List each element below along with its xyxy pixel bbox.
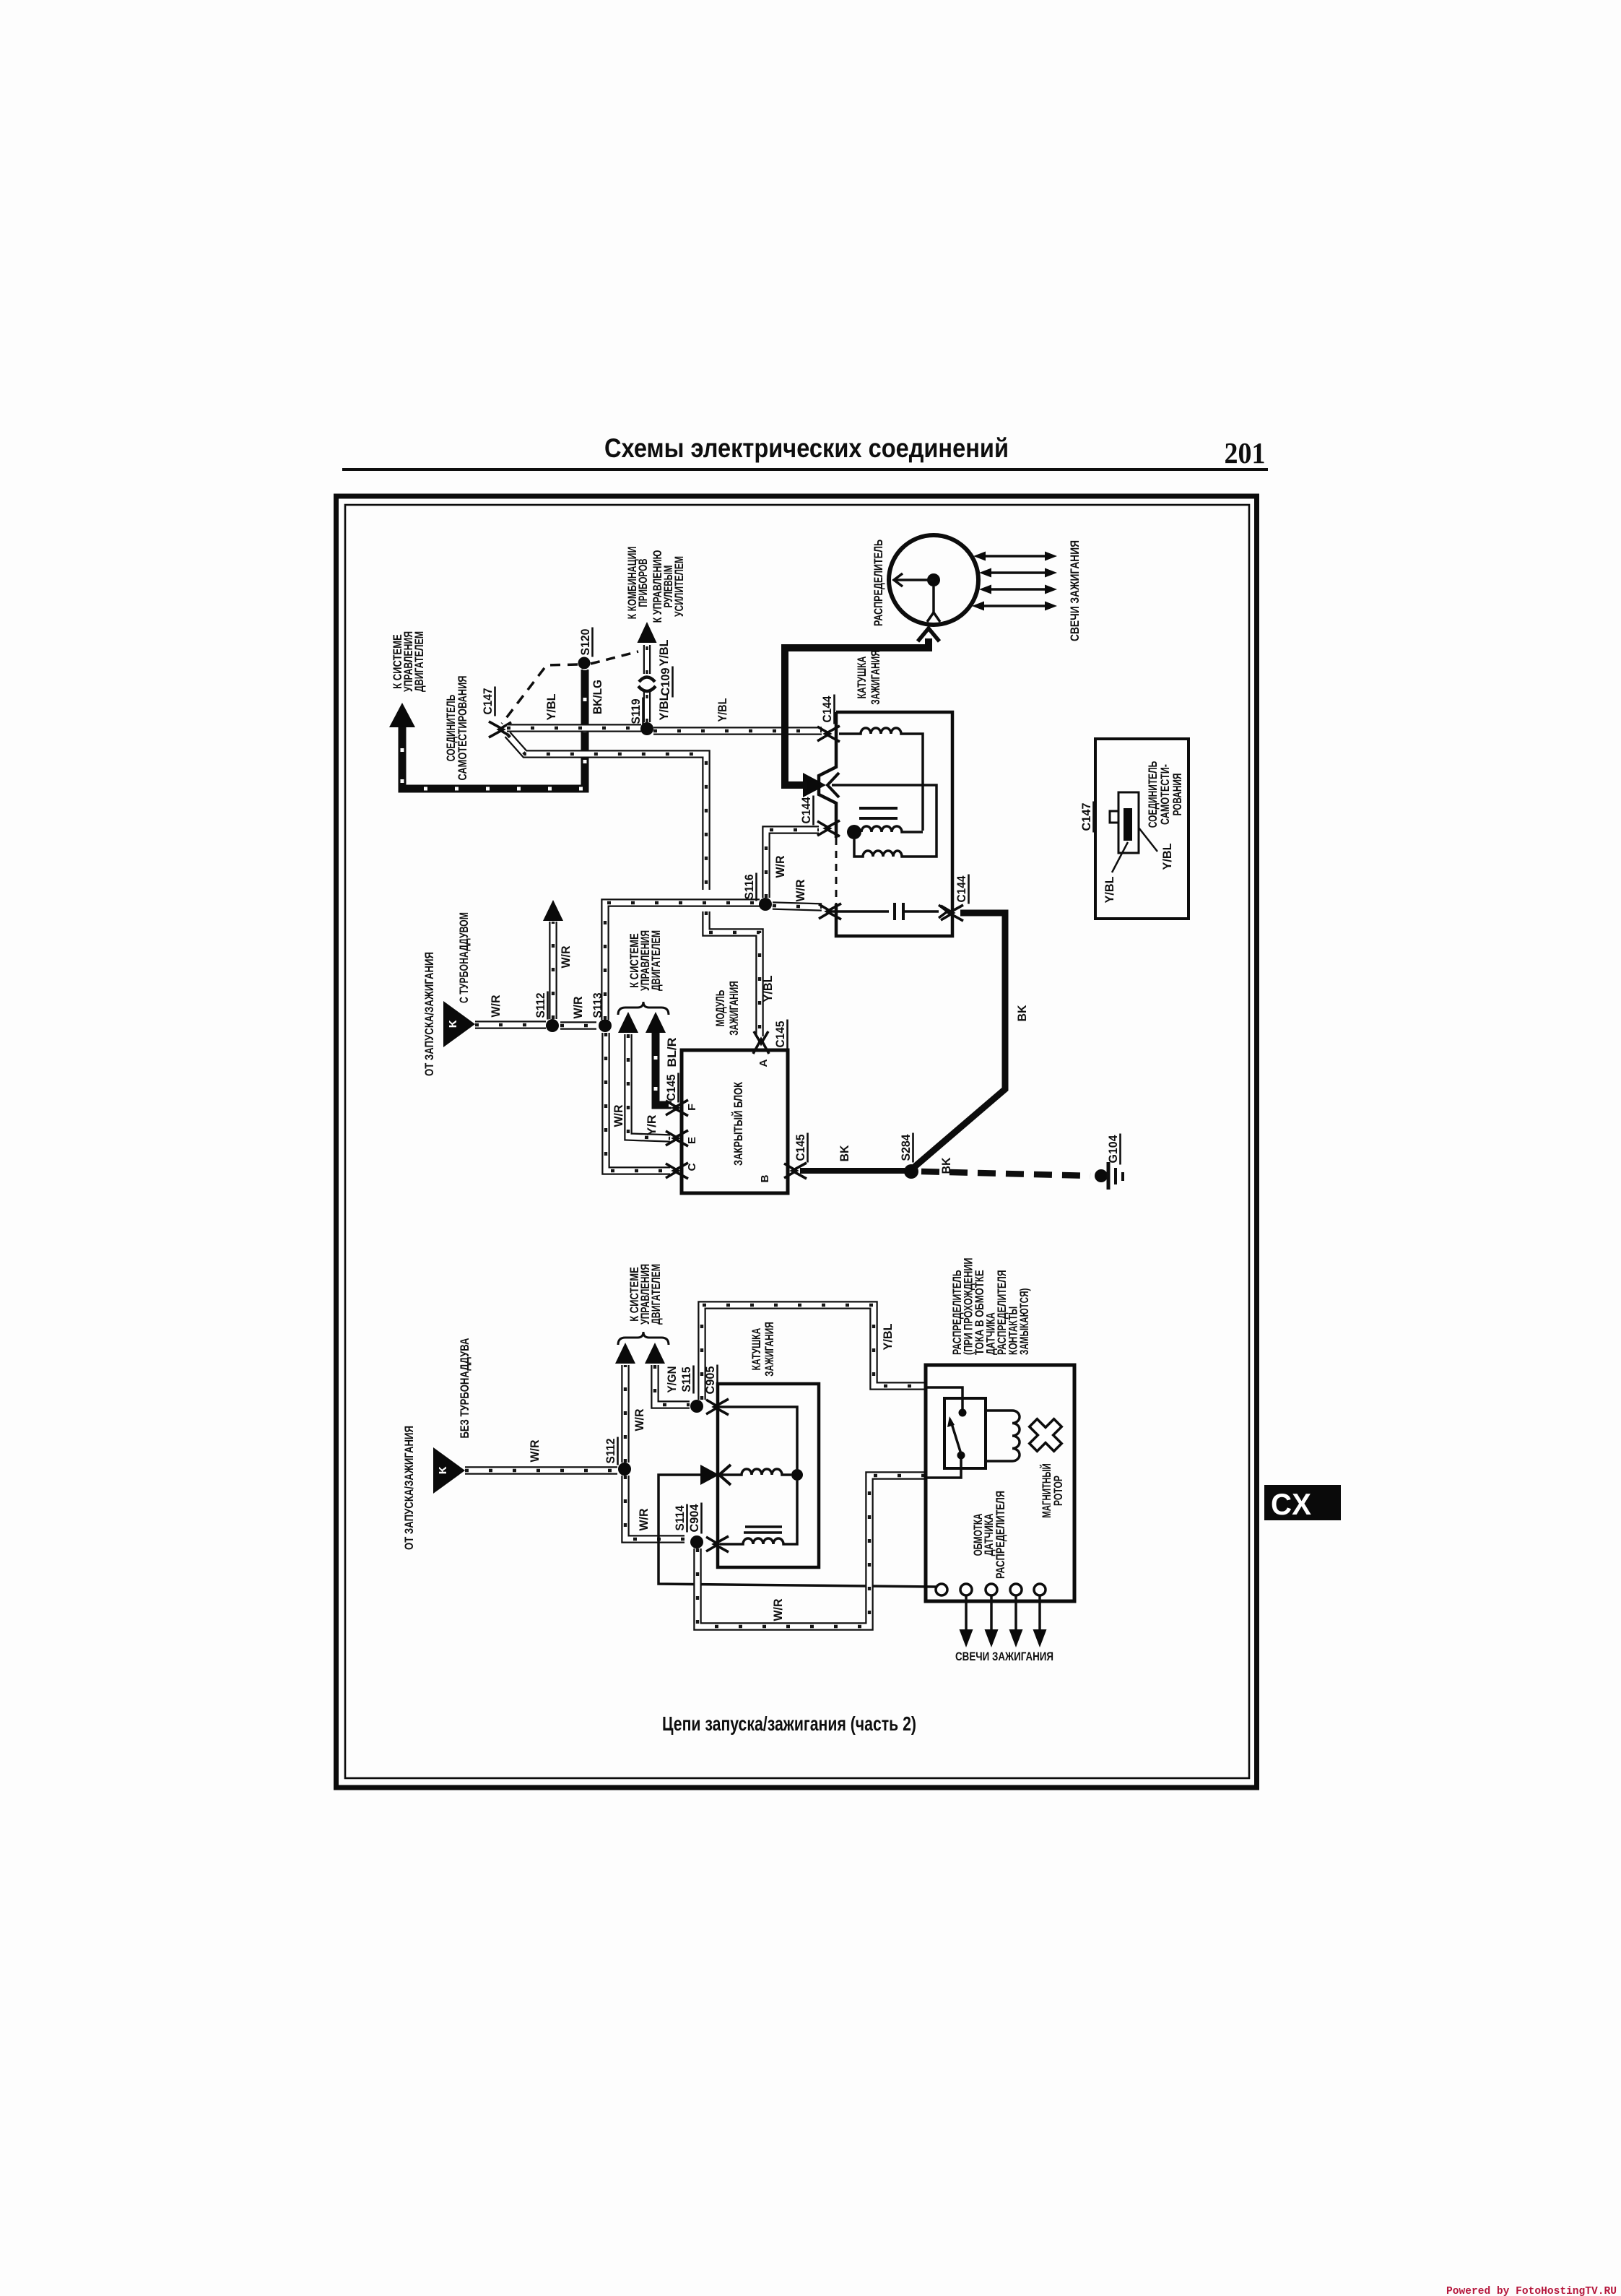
svg-text:W/R: W/R <box>490 995 503 1017</box>
svg-text:S114: S114 <box>674 1505 687 1531</box>
svg-text:201: 201 <box>1225 436 1266 469</box>
svg-text:E: E <box>686 1137 698 1144</box>
svg-text:S112: S112 <box>534 993 547 1018</box>
svg-text:W/R: W/R <box>794 879 807 901</box>
svg-text:ДВИГАТЕЛЕМ: ДВИГАТЕЛЕМ <box>650 1264 663 1325</box>
svg-text:САМОТЕСТИ-: САМОТЕСТИ- <box>1159 764 1172 825</box>
svg-text:W/R: W/R <box>772 1598 785 1621</box>
svg-text:УСИЛИТЕЛЕМ: УСИЛИТЕЛЕМ <box>673 556 686 617</box>
svg-text:W/R: W/R <box>560 945 573 968</box>
svg-text:РАСПРЕДЕЛИТЕЛЬ: РАСПРЕДЕЛИТЕЛЬ <box>872 540 885 626</box>
svg-text:Y/BL: Y/BL <box>762 976 775 1002</box>
svg-text:C144: C144 <box>955 875 968 903</box>
svg-text:C144: C144 <box>821 696 834 723</box>
svg-text:C147: C147 <box>482 688 495 715</box>
svg-text:W/R: W/R <box>774 855 787 878</box>
svg-text:F: F <box>686 1104 698 1111</box>
svg-text:КАТУШКА: КАТУШКА <box>750 1328 763 1371</box>
svg-text:Y/BL: Y/BL <box>882 1324 895 1351</box>
svg-text:РАСПРЕДЕЛИТЕЛЯ: РАСПРЕДЕЛИТЕЛЯ <box>994 1491 1007 1579</box>
svg-text:S112: S112 <box>604 1439 617 1464</box>
svg-text:S116: S116 <box>743 875 756 900</box>
svg-text:BL/R: BL/R <box>666 1037 679 1067</box>
svg-text:БЕЗ ТУРБОНАДДУВА: БЕЗ ТУРБОНАДДУВА <box>459 1338 471 1438</box>
svg-text:КАТУШКА: КАТУШКА <box>856 657 869 699</box>
svg-text:Powered by FotoHostingTV.RU: Powered by FotoHostingTV.RU <box>1446 2286 1617 2296</box>
svg-text:ЗАКРЫТЫЙ БЛОК: ЗАКРЫТЫЙ БЛОК <box>731 1081 745 1166</box>
svg-text:ОТ ЗАПУСКА/ЗАЖИГАНИЯ: ОТ ЗАПУСКА/ЗАЖИГАНИЯ <box>403 1426 416 1550</box>
svg-text:СВЕЧИ ЗАЖИГАНИЯ: СВЕЧИ ЗАЖИГАНИЯ <box>955 1650 1053 1663</box>
svg-text:G104: G104 <box>1107 1135 1120 1164</box>
svg-text:S119: S119 <box>630 699 643 724</box>
svg-text:К: К <box>437 1465 449 1474</box>
svg-text:ДВИГАТЕЛЕМ: ДВИГАТЕЛЕМ <box>650 930 663 991</box>
svg-text:ЗАМЫКАЮТСЯ): ЗАМЫКАЮТСЯ) <box>1018 1288 1031 1355</box>
svg-text:C145: C145 <box>774 1021 787 1048</box>
svg-text:РОТОР: РОТОР <box>1052 1476 1065 1506</box>
svg-text:Y/BL: Y/BL <box>1103 877 1116 904</box>
svg-text:W/R: W/R <box>612 1104 625 1127</box>
svg-text:Y/BL: Y/BL <box>658 640 671 667</box>
svg-text:BK: BK <box>1016 1005 1029 1021</box>
svg-text:СОЕДИНИТЕЛЬ: СОЕДИНИТЕЛЬ <box>1147 761 1160 828</box>
svg-text:C144: C144 <box>800 797 813 824</box>
svg-text:BK: BK <box>838 1145 851 1161</box>
svg-text:S284: S284 <box>900 1134 913 1161</box>
svg-text:РОВАНИЯ: РОВАНИЯ <box>1171 774 1184 816</box>
svg-text:S115: S115 <box>680 1367 693 1392</box>
svg-text:Цепи запуска/зажигания (часть: Цепи запуска/зажигания (часть 2) <box>662 1712 916 1735</box>
svg-text:Схемы электрических соединен: Схемы электрических соединений <box>604 433 1009 463</box>
svg-text:Y/BL: Y/BL <box>658 694 671 721</box>
svg-text:C904: C904 <box>688 1504 701 1533</box>
svg-text:C145: C145 <box>794 1135 807 1161</box>
svg-text:САМОТЕСТИРОВАНИЯ: САМОТЕСТИРОВАНИЯ <box>456 676 469 781</box>
svg-text:B: B <box>759 1174 771 1182</box>
svg-text:S120: S120 <box>579 629 592 656</box>
svg-text:СВЕЧИ ЗАЖИГАНИЯ: СВЕЧИ ЗАЖИГАНИЯ <box>1069 540 1082 641</box>
svg-text:BK: BK <box>940 1157 953 1174</box>
svg-text:ДВИГАТЕЛЕМ: ДВИГАТЕЛЕМ <box>413 631 426 692</box>
svg-text:W/R: W/R <box>572 996 585 1018</box>
svg-text:ОТ ЗАПУСКА/ЗАЖИГАНИЯ: ОТ ЗАПУСКА/ЗАЖИГАНИЯ <box>423 952 436 1076</box>
svg-text:Y/BL: Y/BL <box>1161 844 1174 870</box>
svg-text:C145: C145 <box>665 1075 678 1101</box>
svg-text:BK/LG: BK/LG <box>591 680 604 714</box>
svg-text:W/R: W/R <box>638 1508 651 1530</box>
svg-text:C109: C109 <box>659 668 672 696</box>
svg-text:Y/BL: Y/BL <box>716 698 729 722</box>
svg-text:Y/BL: Y/BL <box>545 694 558 721</box>
svg-text:С ТУРБОНАДДУВОМ: С ТУРБОНАДДУВОМ <box>458 912 471 1003</box>
svg-text:Y/R: Y/R <box>646 1114 659 1135</box>
svg-text:C147: C147 <box>1080 803 1093 831</box>
svg-text:ЗАЖИГАНИЯ: ЗАЖИГАНИЯ <box>869 650 882 705</box>
svg-text:ЗАЖИГАНИЯ: ЗАЖИГАНИЯ <box>763 1322 776 1377</box>
svg-text:ЗАЖИГАНИЯ: ЗАЖИГАНИЯ <box>728 981 741 1036</box>
svg-text:Y/GN: Y/GN <box>666 1366 679 1393</box>
svg-text:W/R: W/R <box>529 1439 542 1462</box>
svg-text:A: A <box>757 1059 770 1067</box>
svg-text:МОДУЛЬ: МОДУЛЬ <box>714 990 727 1026</box>
svg-text:К: К <box>447 1019 459 1028</box>
svg-text:ПРИБОРОВ: ПРИБОРОВ <box>637 558 650 607</box>
svg-text:W/R: W/R <box>633 1408 646 1431</box>
svg-text:CX: CX <box>1271 1487 1311 1521</box>
